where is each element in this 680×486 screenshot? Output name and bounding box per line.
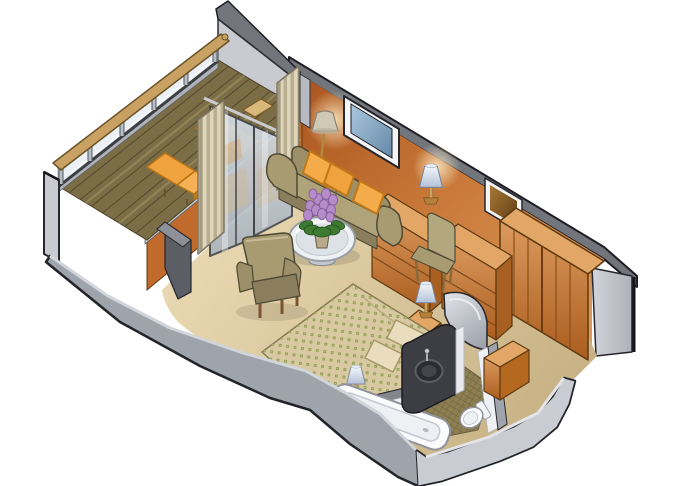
armchair-arm-left: [237, 262, 254, 292]
curtain-left: [198, 100, 224, 254]
stateroom-illustration: [0, 0, 680, 486]
pane-streak: [262, 130, 268, 228]
right-end-wall: [592, 268, 634, 356]
faucet-head: [425, 349, 429, 353]
stateroom-svg: [0, 0, 680, 486]
back-wall-cut-strip: [300, 74, 310, 128]
railing-cap-end: [222, 34, 228, 40]
desk-side: [496, 256, 512, 340]
vanity-counter-side: [456, 326, 464, 394]
sink-basin-inner: [422, 365, 437, 377]
end-wall-cut-face: [592, 268, 632, 356]
curtain-shadow-edge: [198, 117, 202, 254]
left-hull-wall-cap: [44, 172, 59, 262]
floor-lamp-shade-bottom: [312, 128, 338, 134]
